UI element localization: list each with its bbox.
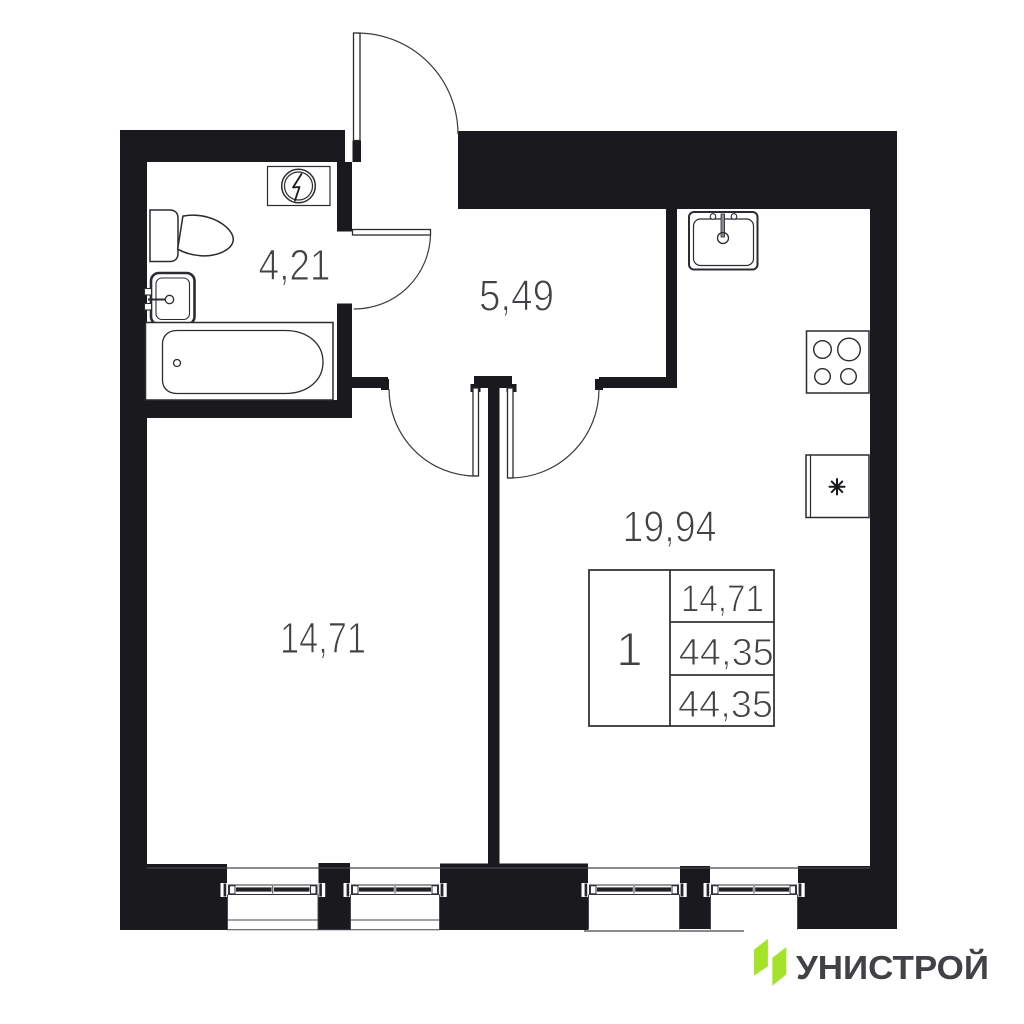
svg-text:УНИСТРОЙ: УНИСТРОЙ xyxy=(796,948,989,986)
svg-text:14,71: 14,71 xyxy=(681,579,764,621)
svg-text:44,35: 44,35 xyxy=(678,684,773,726)
svg-text:4,21: 4,21 xyxy=(259,241,331,290)
svg-text:1: 1 xyxy=(616,623,642,676)
svg-text:14,71: 14,71 xyxy=(280,614,366,663)
svg-text:44,35: 44,35 xyxy=(679,632,774,674)
svg-text:19,94: 19,94 xyxy=(623,503,717,552)
svg-text:5,49: 5,49 xyxy=(479,272,554,321)
